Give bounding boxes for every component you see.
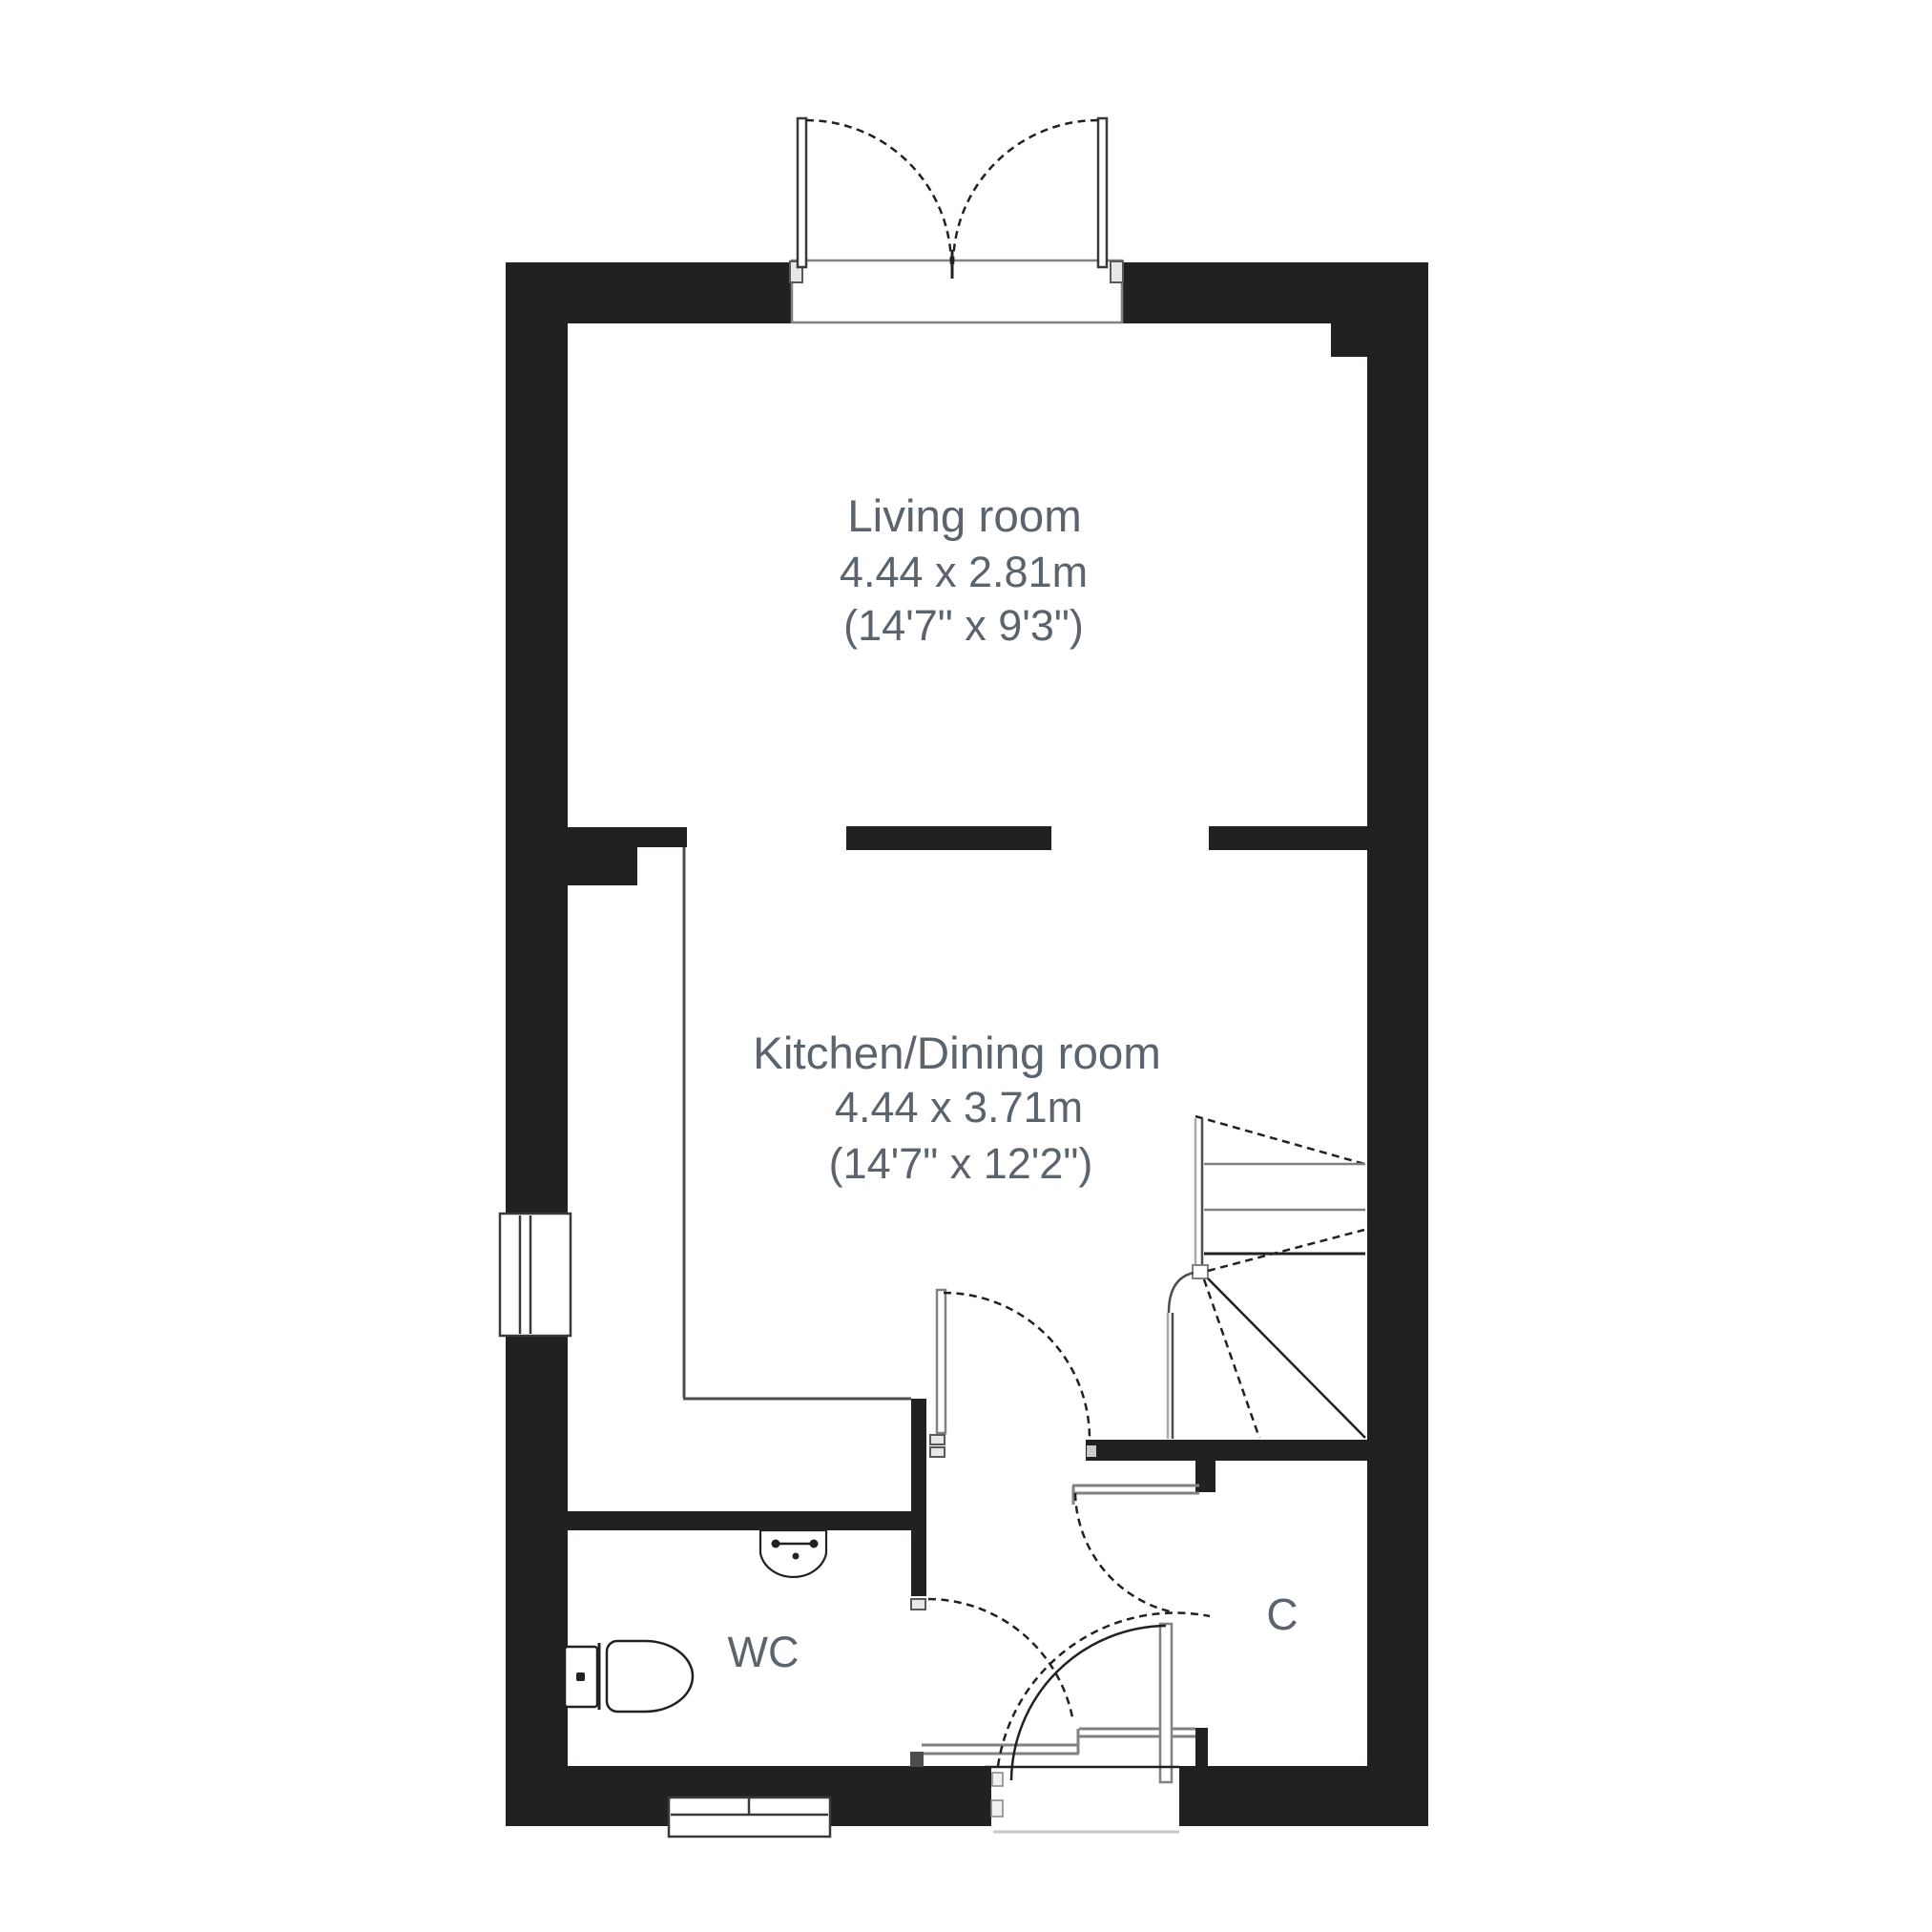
svg-text:C: C xyxy=(1266,1589,1298,1639)
svg-text:4.44 x 2.81m: 4.44 x 2.81m xyxy=(840,548,1088,596)
svg-text:WC: WC xyxy=(728,1628,800,1676)
svg-text:(14'7" x 9'3"): (14'7" x 9'3") xyxy=(843,601,1084,650)
svg-text:4.44 x 3.71m: 4.44 x 3.71m xyxy=(835,1083,1083,1132)
svg-text:Kitchen/Dining room: Kitchen/Dining room xyxy=(753,1028,1161,1079)
svg-text:Living room: Living room xyxy=(847,491,1082,542)
svg-text:(14'7" x 12'2"): (14'7" x 12'2") xyxy=(829,1139,1093,1188)
